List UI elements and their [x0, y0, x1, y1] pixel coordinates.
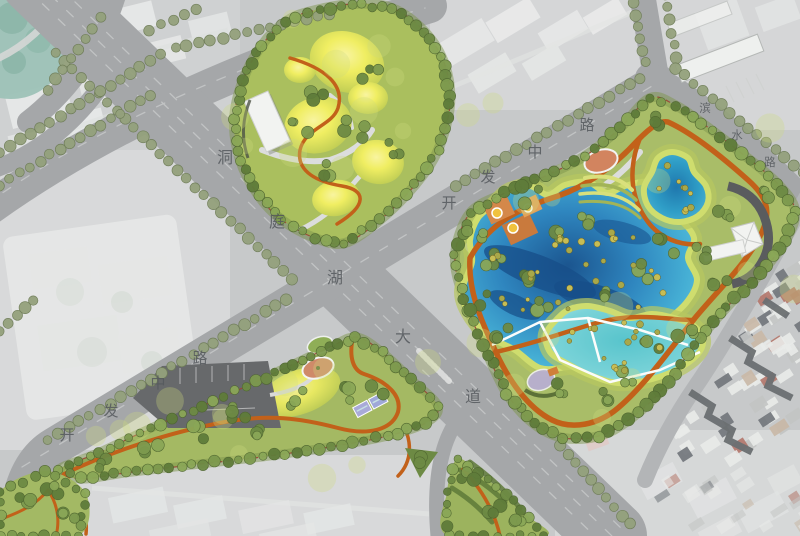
- street-tree: [230, 29, 241, 40]
- street-tree: [641, 57, 650, 66]
- park-tree: [442, 521, 453, 532]
- park-tree: [307, 352, 316, 361]
- street-tree: [55, 111, 66, 122]
- street-tree: [44, 118, 54, 128]
- wetland-tree: [591, 325, 598, 332]
- park-tree: [425, 393, 435, 403]
- park-tree: [290, 396, 301, 407]
- park-tree: [259, 452, 267, 460]
- street-tree: [5, 174, 14, 183]
- street-tree: [218, 33, 230, 45]
- park-tree: [389, 150, 398, 159]
- park-tree: [114, 439, 124, 449]
- grass-texture: [544, 190, 561, 207]
- park-tree: [198, 434, 208, 444]
- street-tree: [96, 12, 106, 22]
- street-tree: [571, 458, 580, 467]
- street-tree: [81, 34, 90, 43]
- park-tree: [754, 266, 767, 279]
- grass-texture: [483, 93, 504, 114]
- street-tree: [734, 116, 745, 127]
- park-tree: [357, 226, 366, 235]
- park-tree: [209, 455, 221, 467]
- park-tree: [583, 219, 594, 230]
- park-tree: [712, 205, 724, 217]
- street-tree: [788, 160, 799, 171]
- park-tree: [74, 457, 83, 466]
- grass-texture: [386, 68, 405, 87]
- park-tree: [582, 432, 593, 443]
- street-tree: [76, 73, 86, 83]
- street-tree: [64, 138, 75, 149]
- street-tree: [74, 98, 85, 109]
- park-tree: [676, 359, 686, 369]
- street-tree: [136, 96, 146, 106]
- park-tree: [429, 42, 441, 54]
- wetland-tree: [655, 330, 660, 335]
- park-tree: [253, 431, 262, 440]
- park-tree: [39, 465, 51, 477]
- street-tree: [510, 144, 522, 156]
- wetland-tree: [528, 270, 535, 277]
- park-tree: [187, 460, 196, 469]
- park-tree: [447, 464, 458, 475]
- street-tree: [3, 318, 13, 328]
- park-tree: [530, 303, 544, 317]
- park-tree: [121, 467, 131, 477]
- street-tree: [75, 133, 85, 143]
- park-tree: [448, 476, 456, 484]
- road-label-char: 中: [150, 375, 165, 392]
- park-tree: [327, 442, 336, 451]
- street-tree: [144, 25, 155, 36]
- park-tree: [551, 378, 563, 390]
- park-tree: [443, 99, 454, 110]
- park-tree: [416, 173, 425, 182]
- grass-texture: [541, 329, 560, 348]
- park-tree: [136, 429, 144, 437]
- park-tree: [641, 335, 653, 347]
- street-tree: [191, 4, 201, 14]
- park-tree: [342, 382, 356, 396]
- park-tree: [458, 294, 469, 305]
- park-tree: [457, 283, 467, 293]
- park-tree: [686, 324, 697, 335]
- street-tree: [155, 149, 165, 159]
- wetland-tree: [636, 305, 641, 310]
- wetland-tree: [634, 329, 639, 334]
- park-tree: [272, 25, 281, 34]
- park-tree: [81, 500, 90, 509]
- park-tree: [532, 523, 541, 532]
- park-tree: [555, 389, 564, 398]
- park-tree: [481, 260, 492, 271]
- park-tree: [271, 368, 279, 376]
- grass-texture: [279, 139, 307, 167]
- grass-texture: [308, 464, 336, 492]
- park-tree: [443, 500, 450, 507]
- park-tree: [58, 508, 68, 518]
- street-tree: [278, 265, 289, 276]
- masterplan-image: 洞庭湖大道开发中路开发中路滨水路: [0, 0, 800, 536]
- street-tree: [146, 139, 156, 149]
- road-label-char: 开: [59, 427, 74, 444]
- park-tree: [357, 132, 369, 144]
- park-tree: [535, 296, 544, 305]
- road-label-char: 水: [731, 129, 743, 142]
- wetland-tree: [583, 262, 588, 267]
- street-tree: [4, 140, 16, 152]
- street-tree: [73, 44, 84, 55]
- wetland-tree: [637, 321, 644, 328]
- park-tree: [231, 124, 240, 133]
- grass-texture: [86, 426, 106, 446]
- street-tree: [95, 86, 106, 97]
- road-label-char: 发: [103, 403, 118, 420]
- street-tree: [106, 81, 117, 92]
- wetland-tree: [557, 237, 563, 243]
- street-tree: [107, 114, 116, 123]
- park-tree: [500, 389, 512, 401]
- wetland-tree: [664, 162, 671, 169]
- street-tree: [666, 29, 676, 39]
- street-tree: [601, 493, 610, 502]
- grass-texture: [367, 34, 390, 57]
- park-tree: [167, 413, 178, 424]
- park-tree: [371, 344, 379, 352]
- park-tree: [359, 121, 371, 133]
- park-tree: [348, 0, 357, 9]
- park-tree: [75, 472, 87, 484]
- park-tree: [368, 3, 377, 12]
- park-tree: [233, 146, 243, 156]
- park-tree: [515, 179, 529, 193]
- wetland-tree: [631, 235, 636, 240]
- park-tree: [324, 3, 337, 16]
- street-tree: [254, 24, 264, 34]
- park-tree: [95, 464, 104, 473]
- park-tree: [435, 134, 446, 145]
- park-tree: [692, 242, 701, 251]
- park-tree: [441, 79, 454, 92]
- park-tree: [472, 329, 482, 339]
- park-tree: [366, 220, 377, 231]
- wetland-tree: [602, 356, 606, 360]
- park-tree: [100, 472, 109, 481]
- park-tree: [483, 200, 492, 209]
- street-tree: [532, 132, 543, 143]
- street-tree: [743, 123, 754, 134]
- road-label-char: 大: [395, 328, 411, 346]
- street-tree: [29, 296, 38, 305]
- street-tree: [593, 97, 604, 108]
- street-tree: [85, 81, 95, 91]
- wetland-tree: [688, 204, 695, 211]
- street-tree: [84, 411, 93, 420]
- street-tree: [250, 315, 259, 324]
- park-tree: [503, 323, 513, 333]
- park-tree: [132, 466, 141, 475]
- park-tree: [358, 337, 370, 349]
- park-tree: [196, 401, 207, 412]
- street-tree: [604, 91, 615, 102]
- park-tree: [310, 234, 321, 245]
- park-tree: [236, 156, 246, 166]
- park-tree: [668, 248, 679, 259]
- street-tree: [593, 483, 605, 495]
- street-tree: [15, 168, 24, 177]
- wetland-tree: [613, 236, 618, 241]
- road-label-char: 道: [465, 388, 481, 406]
- park-tree: [671, 329, 685, 343]
- park-tree: [332, 339, 343, 350]
- park-tree: [387, 4, 397, 14]
- street-tree: [637, 46, 648, 57]
- wetland-tree: [682, 185, 688, 191]
- park-tree: [442, 112, 454, 124]
- park-tree: [365, 380, 378, 393]
- park-tree: [401, 188, 413, 200]
- street-tree: [169, 15, 179, 25]
- street-tree: [171, 43, 180, 52]
- wetland-tree: [566, 307, 570, 311]
- park-tree: [384, 431, 394, 441]
- road-label-char: 滨: [699, 101, 711, 115]
- street-tree: [635, 74, 645, 84]
- street-tree: [679, 69, 689, 79]
- street-tree: [145, 55, 156, 66]
- wetland-tree: [526, 297, 530, 301]
- park-tree: [178, 462, 188, 472]
- street-tree: [87, 24, 97, 34]
- park-tree: [722, 276, 732, 286]
- street-tree: [243, 27, 252, 36]
- park-tree: [434, 402, 443, 411]
- park-tree: [763, 171, 773, 181]
- street-tree: [286, 274, 297, 285]
- street-tree: [628, 0, 639, 8]
- park-tree: [347, 233, 357, 243]
- park-tree: [321, 235, 332, 246]
- wetland-tree: [625, 339, 632, 346]
- street-tree: [470, 169, 480, 179]
- park-tree: [301, 445, 312, 456]
- street-tree: [102, 98, 111, 107]
- park-tree: [406, 373, 417, 384]
- park-tree: [580, 152, 589, 161]
- park-tree: [578, 212, 587, 221]
- park-tree: [72, 485, 80, 493]
- street-tree: [663, 2, 672, 11]
- street-tree: [194, 37, 205, 48]
- street-tree: [226, 216, 236, 226]
- street-tree: [228, 324, 239, 335]
- street-tree: [177, 356, 187, 366]
- park-tree: [467, 473, 481, 487]
- street-tree: [578, 466, 589, 477]
- grass-texture: [395, 123, 411, 139]
- park-tree: [636, 258, 647, 269]
- park-tree: [427, 154, 435, 162]
- park-tree: [621, 378, 630, 387]
- street-tree: [625, 518, 636, 529]
- park-tree: [337, 2, 346, 11]
- park-tree: [87, 472, 99, 484]
- park-tree: [198, 460, 209, 471]
- park-tree: [695, 118, 706, 129]
- park-tree: [450, 251, 458, 259]
- street-tree: [156, 49, 166, 59]
- park-tree: [61, 478, 70, 487]
- street-tree: [172, 165, 183, 176]
- park-tree: [288, 118, 296, 126]
- park-tree: [338, 124, 352, 138]
- street-tree: [67, 54, 76, 63]
- street-tree: [44, 149, 54, 159]
- street-tree: [541, 128, 552, 139]
- street-tree: [670, 40, 679, 49]
- park-tree: [316, 6, 324, 14]
- park-tree: [290, 12, 301, 23]
- street-tree: [242, 232, 254, 244]
- park-tree: [440, 123, 451, 134]
- wetland-tree: [654, 274, 661, 281]
- park-tree: [746, 156, 755, 165]
- street-tree: [126, 386, 137, 397]
- park-tree: [254, 190, 265, 201]
- park-tree: [726, 214, 734, 222]
- park-tree: [787, 213, 799, 225]
- park-tree: [373, 64, 384, 75]
- street-tree: [771, 145, 781, 155]
- street-tree: [129, 123, 139, 133]
- park-tree: [488, 508, 499, 519]
- street-tree: [698, 85, 709, 96]
- park-tree: [569, 155, 580, 166]
- street-tree: [124, 100, 136, 112]
- street-tree: [253, 242, 263, 252]
- park-tree: [106, 444, 115, 453]
- park-tree: [261, 373, 272, 384]
- street-tree: [73, 416, 84, 427]
- park-tree: [299, 386, 308, 395]
- park-tree: [571, 433, 581, 443]
- park-tree: [223, 457, 233, 467]
- road-label-char: 路: [764, 155, 776, 169]
- park-tree: [518, 197, 531, 210]
- park-tree: [228, 114, 239, 125]
- park-tree: [287, 359, 298, 370]
- street-tree: [116, 109, 125, 118]
- street-tree: [67, 64, 77, 74]
- wetland-tree: [621, 367, 627, 373]
- street-tree: [136, 380, 146, 390]
- park-tree: [529, 174, 539, 184]
- park-tree: [477, 339, 490, 352]
- street-tree: [204, 35, 215, 46]
- park-tree: [337, 440, 349, 452]
- wetland-tree: [614, 368, 618, 372]
- wetland-tree: [631, 335, 637, 341]
- street-tree: [664, 14, 675, 25]
- road-label-char: 洞: [217, 149, 233, 167]
- wetland-tree: [688, 191, 693, 196]
- park-tree: [652, 233, 663, 244]
- road-label-char: 湖: [327, 269, 343, 287]
- grass-texture: [348, 456, 365, 473]
- street-tree: [167, 362, 176, 371]
- park-tree: [600, 293, 609, 302]
- street-tree: [582, 103, 593, 114]
- street-tree: [450, 181, 461, 192]
- park-tree: [154, 419, 166, 431]
- park-tree: [385, 138, 393, 146]
- park-tree: [494, 370, 503, 379]
- park-tree: [557, 433, 567, 443]
- street-tree: [724, 108, 735, 119]
- street-tree: [208, 338, 218, 348]
- grass-texture: [415, 349, 441, 375]
- wetland-tree: [618, 282, 625, 289]
- grass-texture: [755, 113, 784, 142]
- park-tree: [708, 126, 716, 134]
- street-tree: [563, 115, 574, 126]
- street-tree: [51, 48, 60, 57]
- park-tree: [633, 407, 644, 418]
- park-tree: [18, 478, 28, 488]
- park-tree: [15, 493, 25, 503]
- street-tree: [239, 319, 251, 331]
- street-tree: [280, 294, 292, 306]
- park-tree: [484, 475, 492, 483]
- park-tree: [442, 508, 451, 517]
- park-tree: [142, 464, 153, 475]
- street-tree: [552, 120, 563, 131]
- park-tree: [288, 221, 299, 232]
- park-tree: [747, 277, 758, 288]
- park-tree: [735, 147, 748, 160]
- park-tree: [240, 412, 251, 423]
- park-tree: [435, 146, 445, 156]
- park-tree: [516, 531, 524, 536]
- road-label-char: 庭: [269, 213, 285, 231]
- wetland-tree: [657, 186, 662, 191]
- park-tree: [479, 229, 488, 238]
- road-label-char: 路: [579, 117, 594, 134]
- park-tree: [492, 333, 502, 343]
- park-tree: [153, 464, 163, 474]
- park-tree: [357, 73, 368, 84]
- masterplan-svg: 洞庭湖大道开发中路开发中路滨水路: [0, 0, 800, 536]
- park-tree: [207, 396, 218, 407]
- street-tree: [163, 156, 173, 166]
- road-label-char: 中: [527, 144, 542, 161]
- park-tree: [226, 405, 239, 418]
- street-tree: [625, 79, 636, 90]
- street-tree: [181, 173, 191, 183]
- street-tree: [689, 79, 698, 88]
- park-tree: [708, 279, 720, 291]
- park-tree: [322, 159, 331, 168]
- street-tree: [268, 256, 280, 268]
- park-tree: [613, 420, 623, 430]
- wetland-tree: [566, 247, 572, 253]
- park-tree: [357, 0, 366, 8]
- street-tree: [134, 61, 145, 72]
- park-tree: [179, 410, 187, 418]
- street-tree: [85, 93, 95, 103]
- wetland-tree: [567, 339, 572, 344]
